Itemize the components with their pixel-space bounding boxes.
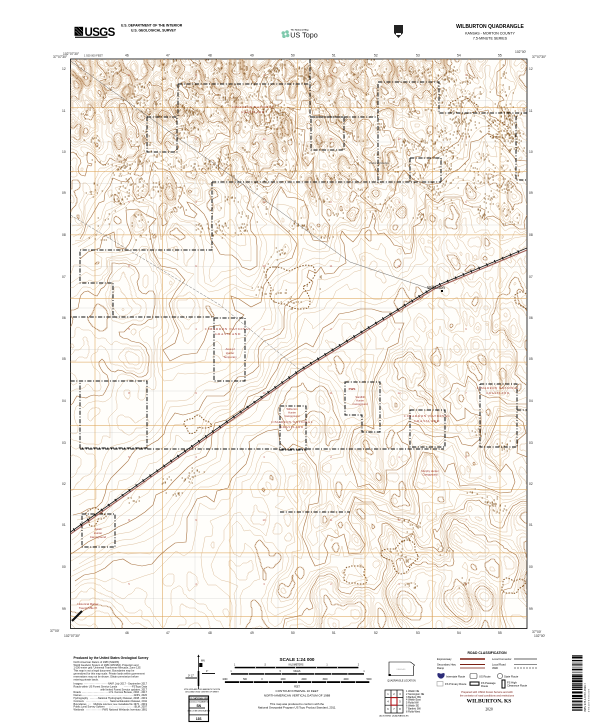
svg-text:10: 10 <box>262 264 266 268</box>
svg-text:CIMARRON NATIONAL: CIMARRON NATIONAL <box>404 414 450 418</box>
svg-text:U.S. GEOLOGICAL SURVEY: U.S. GEOLOGICAL SURVEY <box>131 29 177 33</box>
svg-text:KANSAS - MORTON COUNTY: KANSAS - MORTON COUNTY <box>465 32 515 36</box>
svg-text:51: 51 <box>332 54 336 58</box>
svg-text:Wilburton: Wilburton <box>427 285 445 290</box>
svg-text:FS Primary Route: FS Primary Route <box>445 682 467 686</box>
svg-text:Interstate Route: Interstate Route <box>446 675 466 679</box>
svg-text:WILBURTON, KS: WILBURTON, KS <box>467 699 512 705</box>
svg-text:102°00′: 102°00′ <box>515 50 526 54</box>
svg-text:4: 4 <box>387 700 389 704</box>
svg-text:QUADRANGLE LOCATION: QUADRANGLE LOCATION <box>387 680 416 683</box>
svg-text:46: 46 <box>125 54 129 58</box>
svg-text:NORTH AMERICAN VERTICAL DATUM: NORTH AMERICAN VERTICAL DATUM OF 1988 <box>264 694 331 698</box>
svg-text:Campground: Campground <box>423 473 439 477</box>
svg-text:Wilburton: Wilburton <box>287 407 299 411</box>
svg-text:7: 7 <box>393 707 395 711</box>
svg-text:U.S. DEPARTMENT OF THE INTERIO: U.S. DEPARTMENT OF THE INTERIOR <box>121 24 183 28</box>
svg-text:9 7 8 1 9 7 6 7 0 5 3 9 7: 9 7 8 1 9 7 6 7 0 5 3 9 7 <box>589 688 591 712</box>
svg-text:FWS National Wetlands Inventor: FWS National Wetlands Inventory 1981 <box>102 708 147 712</box>
svg-text:09: 09 <box>529 191 533 195</box>
svg-text:0: 0 <box>261 679 263 681</box>
svg-text:48: 48 <box>208 631 212 635</box>
svg-text:GRASSLAND: GRASSLAND <box>241 110 265 114</box>
svg-text:CIMARRON NATIONAL: CIMARRON NATIONAL <box>477 386 519 390</box>
svg-text:50: 50 <box>291 54 295 58</box>
svg-text:ADJOINING QUADRANGLES: ADJOINING QUADRANGLES <box>379 715 409 718</box>
svg-text:05: 05 <box>529 357 533 361</box>
svg-text:Sandhill: Sandhill <box>355 395 365 399</box>
svg-text:Wetlands: Wetlands <box>74 708 85 712</box>
svg-text:Local Connector: Local Connector <box>492 657 512 661</box>
svg-text:99: 99 <box>529 607 533 611</box>
svg-text:54: 54 <box>457 631 461 635</box>
svg-text:US Route: US Route <box>479 675 491 679</box>
svg-text:55: 55 <box>498 54 502 58</box>
svg-text:500: 500 <box>243 679 248 681</box>
svg-text:FWS: FWS <box>349 387 356 391</box>
svg-text:10: 10 <box>62 150 66 154</box>
svg-text:37°07′30″: 37°07′30″ <box>532 55 547 59</box>
svg-text:2000: 2000 <box>301 679 307 681</box>
svg-text:11: 11 <box>330 391 333 395</box>
svg-text:04: 04 <box>529 399 533 403</box>
svg-text:52: 52 <box>374 631 378 635</box>
svg-text:Temporary: Temporary <box>223 355 237 359</box>
svg-text:.5: .5 <box>264 665 267 667</box>
svg-text:07: 07 <box>529 275 533 279</box>
svg-text:U.S. NATIONAL GRID: U.S. NATIONAL GRID <box>189 697 209 700</box>
svg-text:Hunter: Hunter <box>356 399 364 403</box>
svg-text:1: 1 <box>234 665 236 667</box>
svg-text:DECLINATION AT CENTER OF SHEET: DECLINATION AT CENTER OF SHEET <box>185 690 219 693</box>
svg-text:52: 52 <box>374 54 378 58</box>
svg-text:GRID ZONE DESIGNATION: GRID ZONE DESIGNATION <box>187 710 210 713</box>
svg-text:12: 12 <box>397 518 401 522</box>
svg-text:5: 5 <box>399 700 401 704</box>
svg-text:ISBN 978-1-9767-0539-7: ISBN 978-1-9767-0539-7 <box>583 682 587 712</box>
svg-text:12: 12 <box>397 137 401 141</box>
svg-text:102°00′: 102°00′ <box>534 634 545 638</box>
svg-text:02: 02 <box>529 482 533 486</box>
svg-text:05: 05 <box>62 357 66 361</box>
svg-text:102°07′30″: 102°07′30″ <box>64 634 81 638</box>
svg-text:Campground: Campground <box>90 535 107 539</box>
svg-text:3000: 3000 <box>322 679 328 681</box>
svg-text:KILOMETERS: KILOMETERS <box>289 665 304 667</box>
svg-text:03: 03 <box>62 441 66 445</box>
svg-text:12: 12 <box>397 264 401 268</box>
svg-text:Clearance Route: Clearance Route <box>507 684 528 688</box>
svg-text:01: 01 <box>529 523 533 527</box>
svg-text:MN: MN <box>201 660 205 663</box>
svg-text:54: 54 <box>457 54 461 58</box>
svg-text:7.5-MINUTE SERIES: 7.5-MINUTE SERIES <box>473 37 508 41</box>
svg-text:08: 08 <box>529 233 533 237</box>
svg-text:53: 53 <box>416 54 420 58</box>
svg-text:13S: 13S <box>196 717 202 721</box>
svg-text:102°07′30″: 102°07′30″ <box>63 52 80 56</box>
svg-text:08: 08 <box>62 233 66 237</box>
svg-text:11: 11 <box>529 109 533 113</box>
svg-text:55: 55 <box>498 631 502 635</box>
svg-text:Route: Route <box>481 684 489 688</box>
svg-text:1: 1 <box>230 671 232 673</box>
svg-text:11: 11 <box>330 518 333 522</box>
svg-text:Produced by the United States: Produced by the United States Geological… <box>74 656 149 660</box>
svg-text:06: 06 <box>62 316 66 320</box>
svg-text:48: 48 <box>208 54 212 58</box>
svg-text:Ramp: Ramp <box>437 666 445 670</box>
svg-text:00: 00 <box>62 565 66 569</box>
svg-text:4000: 4000 <box>343 679 349 681</box>
svg-text:46: 46 <box>125 631 129 635</box>
svg-text:5000: 5000 <box>366 679 372 681</box>
svg-text:01: 01 <box>62 523 66 527</box>
svg-text:Point of Rocks: Point of Rocks <box>369 161 389 165</box>
svg-text:09: 09 <box>62 191 66 195</box>
svg-text:MILES: MILES <box>294 671 301 673</box>
svg-text:8: 8 <box>399 707 401 711</box>
svg-text:02: 02 <box>62 482 66 486</box>
svg-text:GRASSLAND: GRASSLAND <box>414 419 440 423</box>
svg-text:04: 04 <box>62 399 66 403</box>
svg-text:49: 49 <box>250 631 254 635</box>
svg-text:WILBURTON QUADRANGLE: WILBURTON QUADRANGLE <box>456 24 524 30</box>
svg-text:1: 1 <box>326 665 328 667</box>
svg-text:State Route: State Route <box>504 675 519 679</box>
svg-text:1: 1 <box>387 692 389 696</box>
svg-text:4°: 4° <box>206 670 208 673</box>
svg-text:47: 47 <box>166 631 170 635</box>
svg-text:US Topo: US Topo <box>290 30 317 39</box>
svg-text:03: 03 <box>529 441 533 445</box>
svg-text:entering private lands.: entering private lands. <box>74 678 99 682</box>
svg-text:GRASSLAND: GRASSLAND <box>215 332 241 336</box>
svg-text:National Geospatial Program US: National Geospatial Program US Topo Prod… <box>258 706 336 710</box>
svg-text:CIMARRON NATIONAL: CIMARRON NATIONAL <box>271 420 313 424</box>
svg-text:CIMARRON NATIONAL: CIMARRON NATIONAL <box>232 105 274 109</box>
svg-text:99: 99 <box>62 607 66 611</box>
svg-text:11: 11 <box>330 137 333 141</box>
svg-text:50: 50 <box>291 631 295 635</box>
svg-text:3: 3 <box>399 692 401 696</box>
svg-text:2: 2 <box>358 665 360 667</box>
svg-text:.5: .5 <box>279 671 282 673</box>
svg-text:07: 07 <box>62 275 66 279</box>
svg-text:12: 12 <box>397 391 401 395</box>
svg-text:0° 17′: 0° 17′ <box>188 675 195 678</box>
svg-text:1: 1 <box>363 671 365 673</box>
svg-text:1000: 1000 <box>280 679 286 681</box>
svg-text:00: 00 <box>529 565 533 569</box>
svg-text:GRASSLAND: GRASSLAND <box>280 425 304 429</box>
svg-text:10: 10 <box>262 518 266 522</box>
svg-text:10: 10 <box>529 150 533 154</box>
svg-text:51: 51 <box>332 631 336 635</box>
svg-text:06: 06 <box>529 316 533 320</box>
svg-text:12: 12 <box>62 67 66 71</box>
svg-text:Murphy Hunter: Murphy Hunter <box>421 469 438 473</box>
svg-text:12: 12 <box>529 67 533 71</box>
svg-text:CONTOUR INTERVAL 10 FEET: CONTOUR INTERVAL 10 FEET <box>276 689 319 693</box>
svg-text:2: 2 <box>393 692 395 696</box>
svg-text:49: 49 <box>250 54 254 58</box>
svg-text:11: 11 <box>62 109 66 113</box>
svg-text:SN: SN <box>196 704 201 708</box>
svg-text:37°00′: 37°00′ <box>50 629 60 633</box>
svg-text:Campground: Campground <box>285 414 301 418</box>
svg-text:ROAD CLASSIFICATION: ROAD CLASSIFICATION <box>467 651 507 655</box>
svg-text:KANSAS: KANSAS <box>397 668 406 671</box>
svg-text:11: 11 <box>330 264 333 268</box>
svg-text:8 Rolla West: 8 Rolla West <box>406 710 420 713</box>
svg-text:6: 6 <box>387 707 389 711</box>
svg-text:10: 10 <box>262 391 266 395</box>
svg-text:1000: 1000 <box>222 679 228 681</box>
svg-text:Twenty Mile Pt: Twenty Mile Pt <box>79 606 97 610</box>
svg-text:1 920 000 FEET: 1 920 000 FEET <box>84 54 103 58</box>
svg-text:2020: 2020 <box>485 708 493 712</box>
svg-text:Campground: Campground <box>353 402 369 406</box>
svg-text:Hunter: Hunter <box>288 411 296 415</box>
svg-text:47: 47 <box>166 54 170 58</box>
svg-text:Prepared with USDA Forest Serv: Prepared with USDA Forest Service and wi… <box>461 690 513 694</box>
svg-text:GRASSLAND: GRASSLAND <box>486 391 510 395</box>
svg-text:Expressway: Expressway <box>437 657 452 661</box>
svg-text:53: 53 <box>416 631 420 635</box>
svg-text:SCALE 1:24 000: SCALE 1:24 000 <box>280 657 315 662</box>
svg-text:4WD: 4WD <box>492 666 498 670</box>
svg-text:10: 10 <box>262 137 266 141</box>
svg-text:CIMARRON NATIONAL: CIMARRON NATIONAL <box>205 327 251 331</box>
svg-text:the omission of road condition: the omission of road conditions and rest… <box>460 694 515 698</box>
